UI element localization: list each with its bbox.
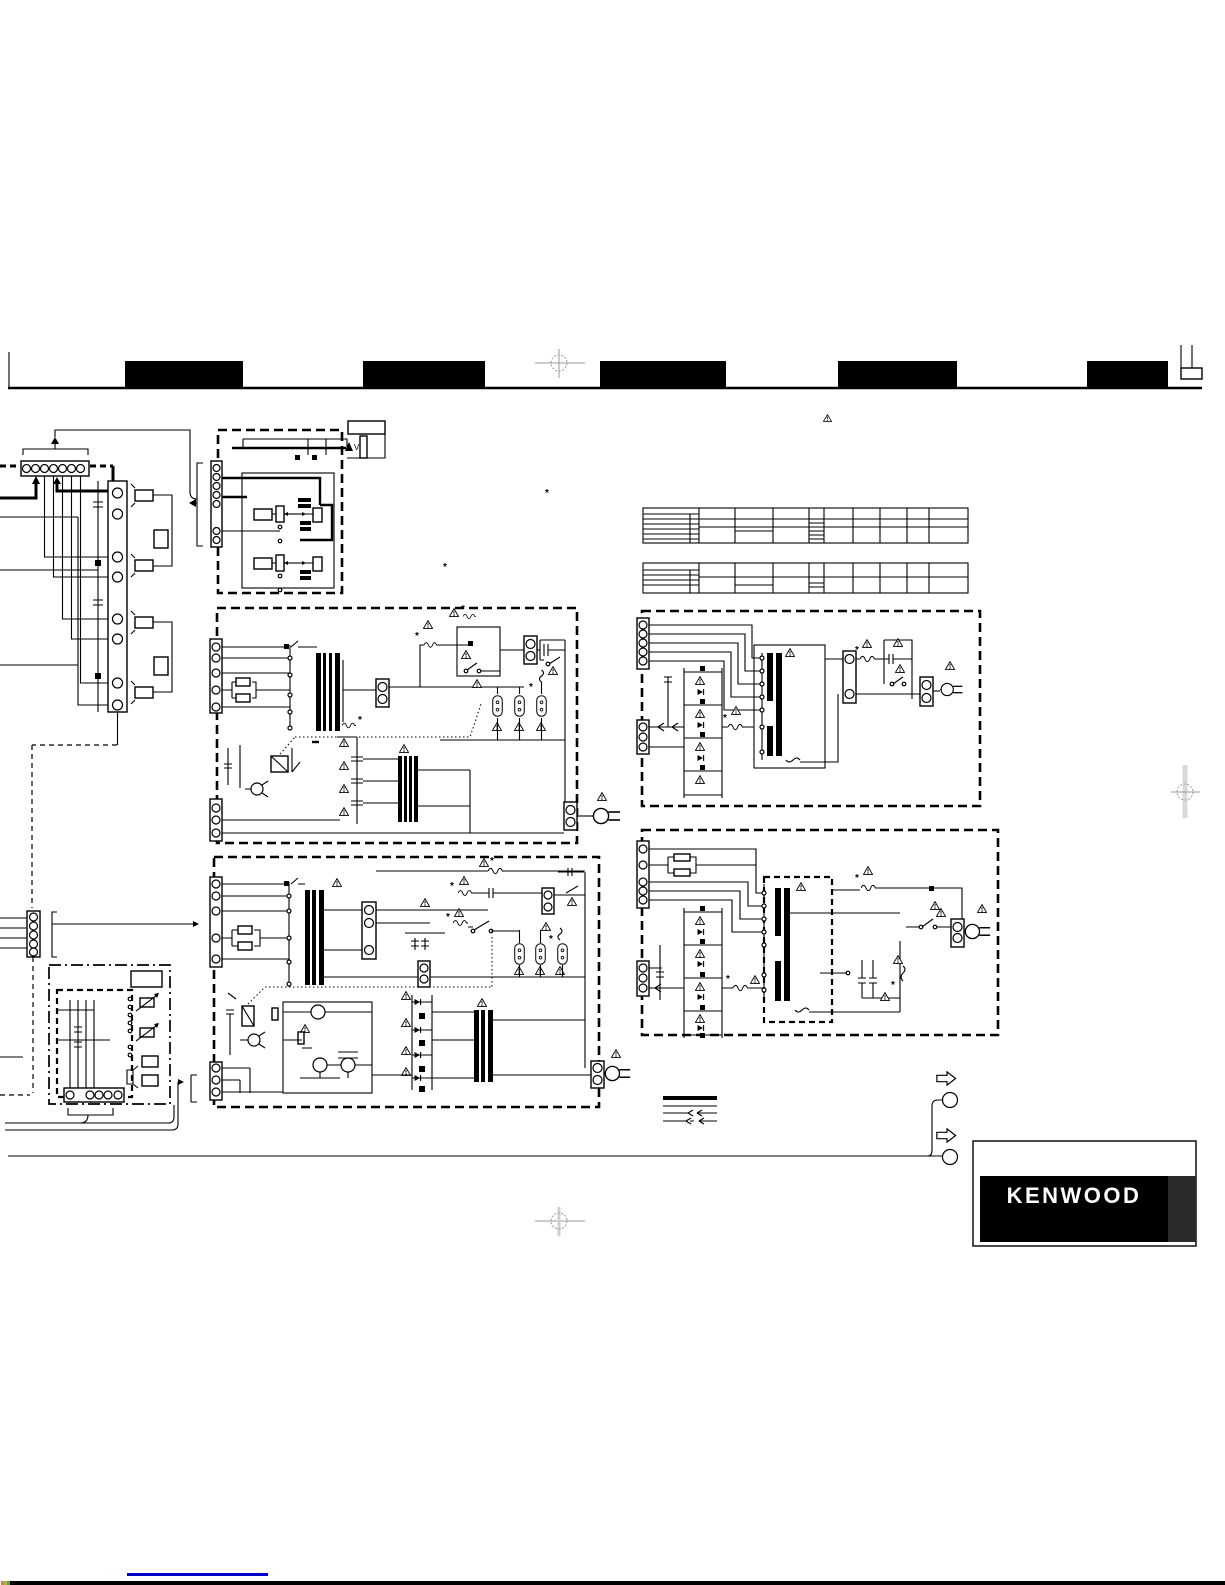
warning-icon (978, 905, 987, 913)
diode-ladder (684, 906, 722, 1038)
asterisk: * (450, 881, 454, 892)
asterisk: * (549, 934, 553, 945)
spec-table-lower (643, 563, 968, 593)
wire-legend (663, 1096, 717, 1124)
warning-icon (598, 793, 607, 801)
warning-icon (696, 917, 705, 925)
warning-icon (340, 785, 349, 793)
terminal-circle (943, 1150, 958, 1165)
warning-icon (402, 1019, 411, 1027)
surge-lamp-icon (515, 944, 525, 965)
warning-icon (696, 1015, 705, 1023)
block-power-supply-2: * * (637, 611, 980, 806)
asterisk: * (461, 604, 465, 615)
fuse-icon (728, 724, 744, 729)
warning-icon (542, 923, 551, 931)
warning-icon (751, 976, 760, 984)
fuse-icon (453, 921, 468, 926)
transformer-icon (398, 756, 418, 822)
terminal-circle (943, 1093, 958, 1108)
surge-lamp-icon (493, 696, 503, 717)
warning-icon (946, 662, 955, 670)
block-power-supply-4: * * * (637, 830, 998, 1038)
diode-icon (698, 961, 704, 967)
warning-icon (696, 983, 705, 991)
warning-icon (421, 899, 430, 907)
asterisk: * (545, 488, 549, 499)
block-relay-board (0, 430, 203, 908)
warning-icon (480, 859, 489, 867)
block-switch-unit: V (211, 421, 385, 593)
block-power-supply-1: * * * * (210, 604, 620, 843)
bottom-left-sensor-unit (0, 911, 199, 1130)
warning-icon (864, 867, 873, 875)
brand-panel: KENWOOD (973, 1141, 1196, 1246)
surge-lamp-icon (515, 696, 525, 717)
page-edge-artifacts (1, 1573, 1225, 1585)
asterisk: * (490, 856, 494, 867)
asterisk: * (446, 912, 450, 923)
warning-icon (402, 1068, 411, 1076)
relay-symbols (131, 484, 172, 704)
warning-icon (786, 649, 795, 657)
warning-icon (696, 950, 705, 958)
transistor-icon (248, 1034, 260, 1046)
warning-icon (402, 1047, 411, 1055)
transistor-icon (313, 1058, 327, 1072)
warning-icon (881, 993, 890, 1001)
asterisk: * (723, 713, 727, 724)
warning-icon (612, 1050, 621, 1058)
fuse-icon (463, 614, 476, 618)
diode-icon (698, 689, 704, 695)
surge-lamp-icon (537, 696, 547, 717)
diode-icon (415, 999, 421, 1005)
warning-icon (863, 640, 872, 648)
label-box (348, 421, 385, 434)
blue-underline (127, 1573, 268, 1576)
fuse-icon (488, 868, 504, 873)
warning-icon (340, 808, 349, 816)
warning-icon (894, 956, 903, 964)
kenwood-logo: KENWOOD (1007, 1183, 1142, 1208)
ac-plug-icon (592, 808, 620, 823)
pointer-arrow-icon (937, 1072, 956, 1085)
spec-table-upper (643, 508, 968, 543)
transformer-icon (474, 1010, 493, 1082)
warning-icon (424, 621, 433, 629)
ac-plug-icon (964, 924, 990, 938)
fuse-icon (733, 985, 749, 990)
transistor-icon (251, 783, 263, 795)
service-manual-schematic-page: V * * * (0, 0, 1225, 1585)
diode-icon (698, 722, 704, 728)
warning-icon (478, 999, 487, 1007)
transformer-icon (316, 653, 340, 731)
fuse-icon (424, 643, 438, 648)
warning-icon (301, 1025, 310, 1033)
warning-icon (824, 415, 832, 422)
diode-icon (698, 1025, 704, 1031)
fuse-icon (342, 723, 356, 728)
asterisk: * (891, 980, 895, 991)
warning-icon (473, 680, 482, 688)
transistor-icon (341, 1058, 355, 1072)
connector-strip (210, 877, 222, 967)
transistor-icon (311, 1005, 325, 1019)
asterisk: * (415, 631, 419, 642)
fuse-icon (861, 885, 877, 890)
warning-icon (340, 739, 349, 747)
warning-icon (696, 710, 705, 718)
fuse-icon (458, 891, 473, 896)
warning-icon (696, 776, 705, 784)
diode-icon (415, 1075, 421, 1081)
warning-icon (896, 665, 905, 673)
pointer-arrow-icon (937, 1129, 956, 1142)
warning-icon (696, 677, 705, 685)
transformer-icon (305, 890, 324, 985)
thermistor-icon (136, 993, 159, 1011)
asterisk: * (529, 682, 533, 693)
diode-icon (415, 1027, 421, 1033)
transformer-icon (762, 884, 790, 1001)
warning-icon (402, 992, 411, 1000)
diode-icon (698, 929, 704, 935)
diode-ladder (684, 666, 722, 798)
warning-icon (568, 898, 577, 906)
warning-icon (400, 745, 409, 753)
warning-icon (931, 902, 940, 910)
asterisk: * (855, 645, 859, 656)
warning-icon (797, 883, 806, 891)
ac-plug-icon (940, 683, 962, 695)
print-calibration-bars (8, 345, 1202, 388)
warning-icon (696, 743, 705, 751)
schematic-canvas: V * * * (0, 0, 1225, 1585)
warning-icon (462, 651, 471, 659)
transformer-icon (760, 653, 782, 760)
relay-icon (271, 737, 295, 772)
warning-icon (549, 667, 558, 675)
diode-icon (698, 994, 704, 1000)
surge-lamp-icon (536, 944, 546, 965)
asterisk: * (358, 715, 362, 726)
warning-icon (556, 967, 565, 975)
relay-control-cluster (226, 987, 265, 1055)
ac-plug-icon (604, 1066, 630, 1080)
asterisk: * (855, 873, 859, 884)
warning-icon (460, 877, 469, 885)
warning-icon (333, 879, 342, 887)
v-label: V (354, 443, 360, 452)
asterisk: * (726, 974, 730, 985)
fuse-icon (860, 656, 876, 661)
diode-column (402, 992, 433, 1092)
diode-icon (698, 755, 704, 761)
warning-icon (450, 609, 459, 617)
diode-icon (415, 1052, 421, 1058)
surge-lamp-icon (558, 944, 568, 965)
registration-mark-top (535, 349, 585, 378)
registration-mark-right (1171, 765, 1200, 818)
warning-icon (340, 762, 349, 770)
registration-mark-bottom (535, 1207, 585, 1236)
block-power-supply-3: * * * * (210, 856, 630, 1107)
asterisk: * (443, 562, 447, 573)
thermistor-icon (136, 1023, 159, 1041)
